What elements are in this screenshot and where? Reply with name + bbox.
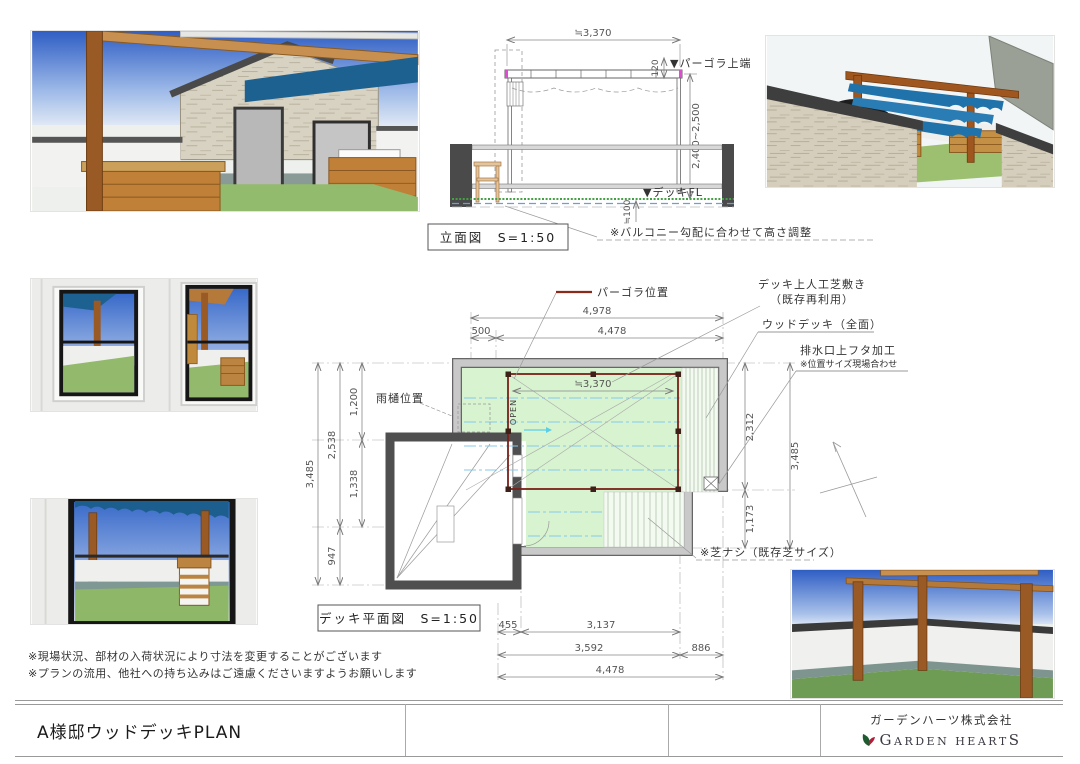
plan-dim-inner: ≒3,370 bbox=[574, 379, 611, 390]
drain-box bbox=[704, 477, 718, 490]
wood-chair bbox=[474, 162, 501, 202]
elevation-drawing: ≒3,370 120 ▼パーゴラ上端 2,400~2,50 bbox=[428, 28, 873, 250]
callout-drain-line1: 排水口上フタ加工 bbox=[800, 343, 896, 357]
callout-drain-line2: ※位置サイズ現場合わせ bbox=[800, 358, 897, 370]
dim-left-d: 947 bbox=[327, 546, 338, 565]
project-title: A様邸ウッドデッキPLAN bbox=[15, 704, 405, 756]
dim-bottom-c: 3,592 bbox=[575, 643, 604, 654]
title-block-divider-1 bbox=[405, 704, 406, 756]
beam-end-right bbox=[679, 70, 682, 78]
callout-grass-line1: デッキ上人工芝敷き bbox=[758, 277, 866, 291]
drawing-sheet: ≒3,370 120 ▼パーゴラ上端 2,400~2,50 bbox=[0, 0, 1080, 764]
beam-end-left bbox=[505, 70, 508, 78]
company-cell: ガーデンハーツ株式会社 GARDEN HEARTS bbox=[820, 704, 1063, 756]
callout-no-grass-text: ※芝ナシ（既存芝サイズ） bbox=[700, 545, 842, 559]
dim-bottom-a: 455 bbox=[498, 620, 517, 631]
title-block: A様邸ウッドデッキPLAN ガーデンハーツ株式会社 GARDEN HEARTS bbox=[15, 700, 1063, 757]
plan-label: デッキ平面図 S=1:50 bbox=[319, 611, 479, 626]
dim-bottom-d: 886 bbox=[691, 643, 710, 654]
dim-bottom-total: 4,478 bbox=[596, 665, 625, 676]
note-line-2: ※プランの流用、他社への持ち込みはご遠慮くださいますようお願いします bbox=[28, 665, 417, 682]
wood-deck-strip-right bbox=[682, 368, 718, 492]
dim-left-b: 2,538 bbox=[327, 431, 338, 460]
dim-right-b: 1,173 bbox=[745, 505, 756, 534]
elev-dim-height: 2,400~2,500 bbox=[691, 103, 702, 169]
callout-pergola-text: パーゴラ位置 bbox=[597, 285, 669, 299]
elev-dim-beam: 120 bbox=[651, 59, 661, 76]
plan-drawing: OPEN ≒3,370 雨樋位置 4,978 500 4,478 3,485 2… bbox=[305, 277, 908, 680]
wood-deck-strip-bottom bbox=[604, 492, 684, 547]
elev-marker-deck-fl: ▼デッキFL bbox=[643, 185, 703, 199]
logo-text: GARDEN HEARTS bbox=[880, 731, 1022, 749]
elev-note: ※バルコニー勾配に合わせて高さ調整 bbox=[610, 225, 812, 239]
callout-grass-line2: （既存再利用） bbox=[770, 292, 854, 306]
pergola-post-right bbox=[677, 78, 681, 192]
general-notes: ※現場状況、部材の入荷状況により寸法を変更することがございます ※プランの流用、… bbox=[28, 648, 417, 682]
dim-left-c: 1,338 bbox=[349, 470, 360, 499]
elev-marker-pergola-top: ▼パーゴラ上端 bbox=[670, 56, 751, 70]
dim-bottom-b: 3,137 bbox=[587, 620, 616, 631]
leaf-icon bbox=[862, 733, 875, 747]
company-logo: GARDEN HEARTS bbox=[862, 731, 1022, 749]
title-block-divider-2 bbox=[668, 704, 669, 756]
dim-top-left: 500 bbox=[471, 326, 490, 337]
note-line-1: ※現場状況、部材の入荷状況により寸法を変更することがございます bbox=[28, 648, 417, 665]
wall-post-right bbox=[722, 144, 734, 207]
dim-left-a: 1,200 bbox=[349, 388, 360, 417]
callout-gutter: 雨樋位置 bbox=[376, 391, 424, 405]
open-label: OPEN bbox=[509, 399, 518, 425]
parapet-rail-top bbox=[472, 145, 722, 150]
awning-swag-line bbox=[512, 88, 678, 92]
dim-top-total: 4,978 bbox=[583, 306, 612, 317]
elevation-label: 立面図 S=1:50 bbox=[440, 230, 556, 245]
dim-left-total: 3,485 bbox=[305, 460, 316, 489]
company-name: ガーデンハーツ株式会社 bbox=[870, 712, 1013, 728]
callout-deck-text: ウッドデッキ（全面） bbox=[762, 317, 882, 331]
dim-top-main: 4,478 bbox=[598, 326, 627, 337]
elev-dim-width: ≒3,370 bbox=[574, 28, 611, 39]
wall-post-left bbox=[450, 144, 472, 207]
hatch-box bbox=[507, 82, 523, 106]
north-arrow bbox=[820, 442, 877, 517]
gutter-leader bbox=[420, 403, 452, 416]
dim-right-total: 3,485 bbox=[790, 442, 801, 471]
elev-dim-deck: ≒100 bbox=[623, 199, 633, 224]
house-door-opening bbox=[513, 498, 522, 544]
dim-right-a: 2,312 bbox=[745, 413, 756, 442]
house-window-opening bbox=[513, 455, 522, 477]
